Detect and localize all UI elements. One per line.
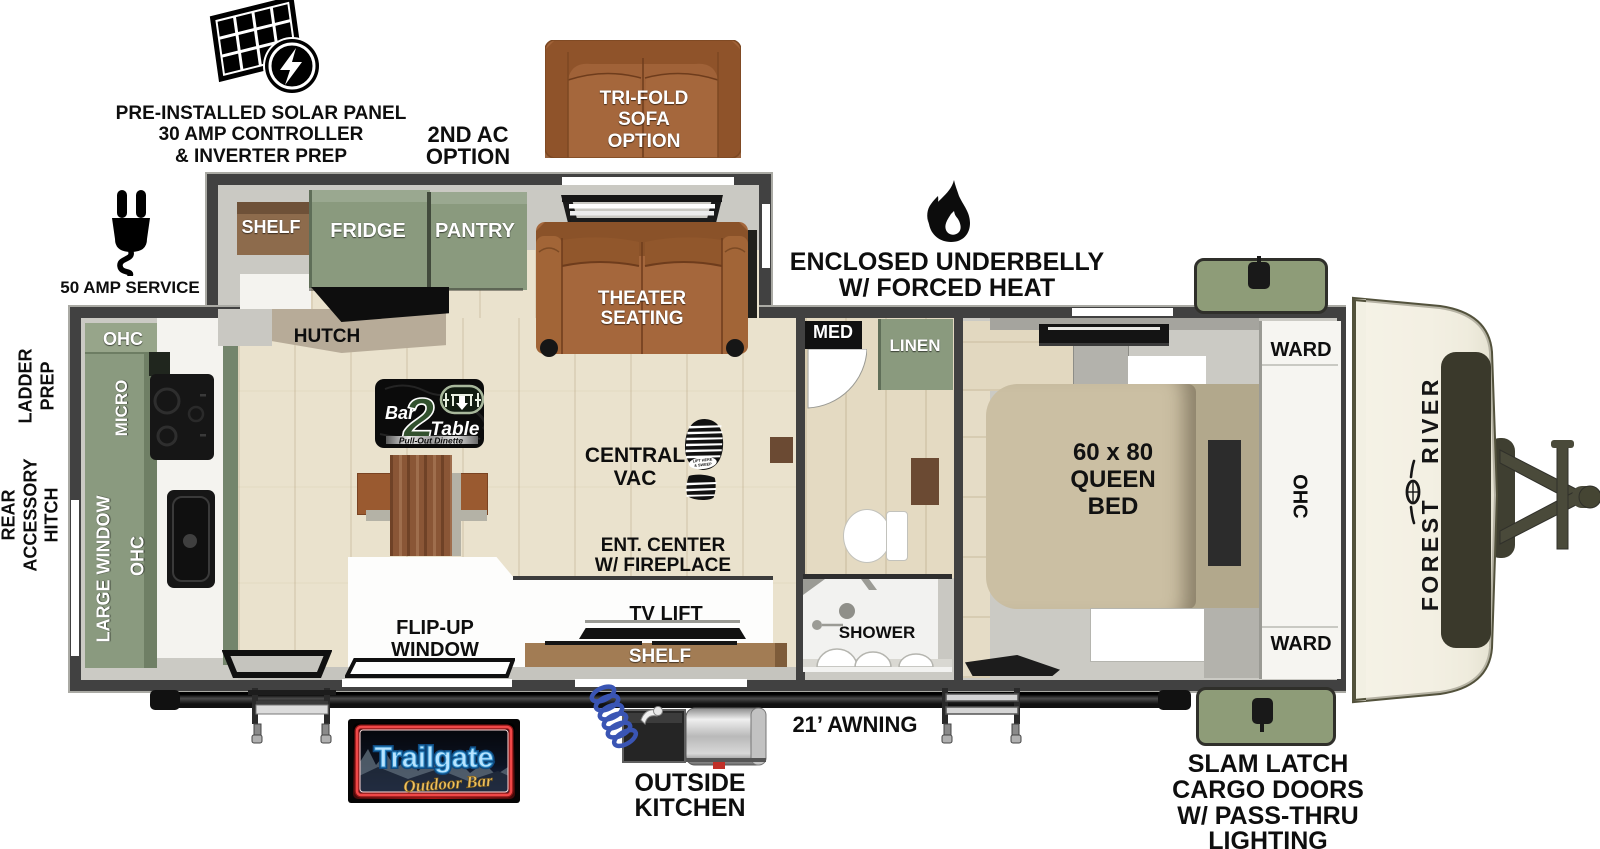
- svg-text:Trailgate: Trailgate: [374, 742, 493, 774]
- svg-text:RIVER: RIVER: [1417, 376, 1443, 464]
- svg-text:Pull-Out Dinette: Pull-Out Dinette: [399, 436, 463, 446]
- svg-text:FOREST: FOREST: [1417, 497, 1443, 611]
